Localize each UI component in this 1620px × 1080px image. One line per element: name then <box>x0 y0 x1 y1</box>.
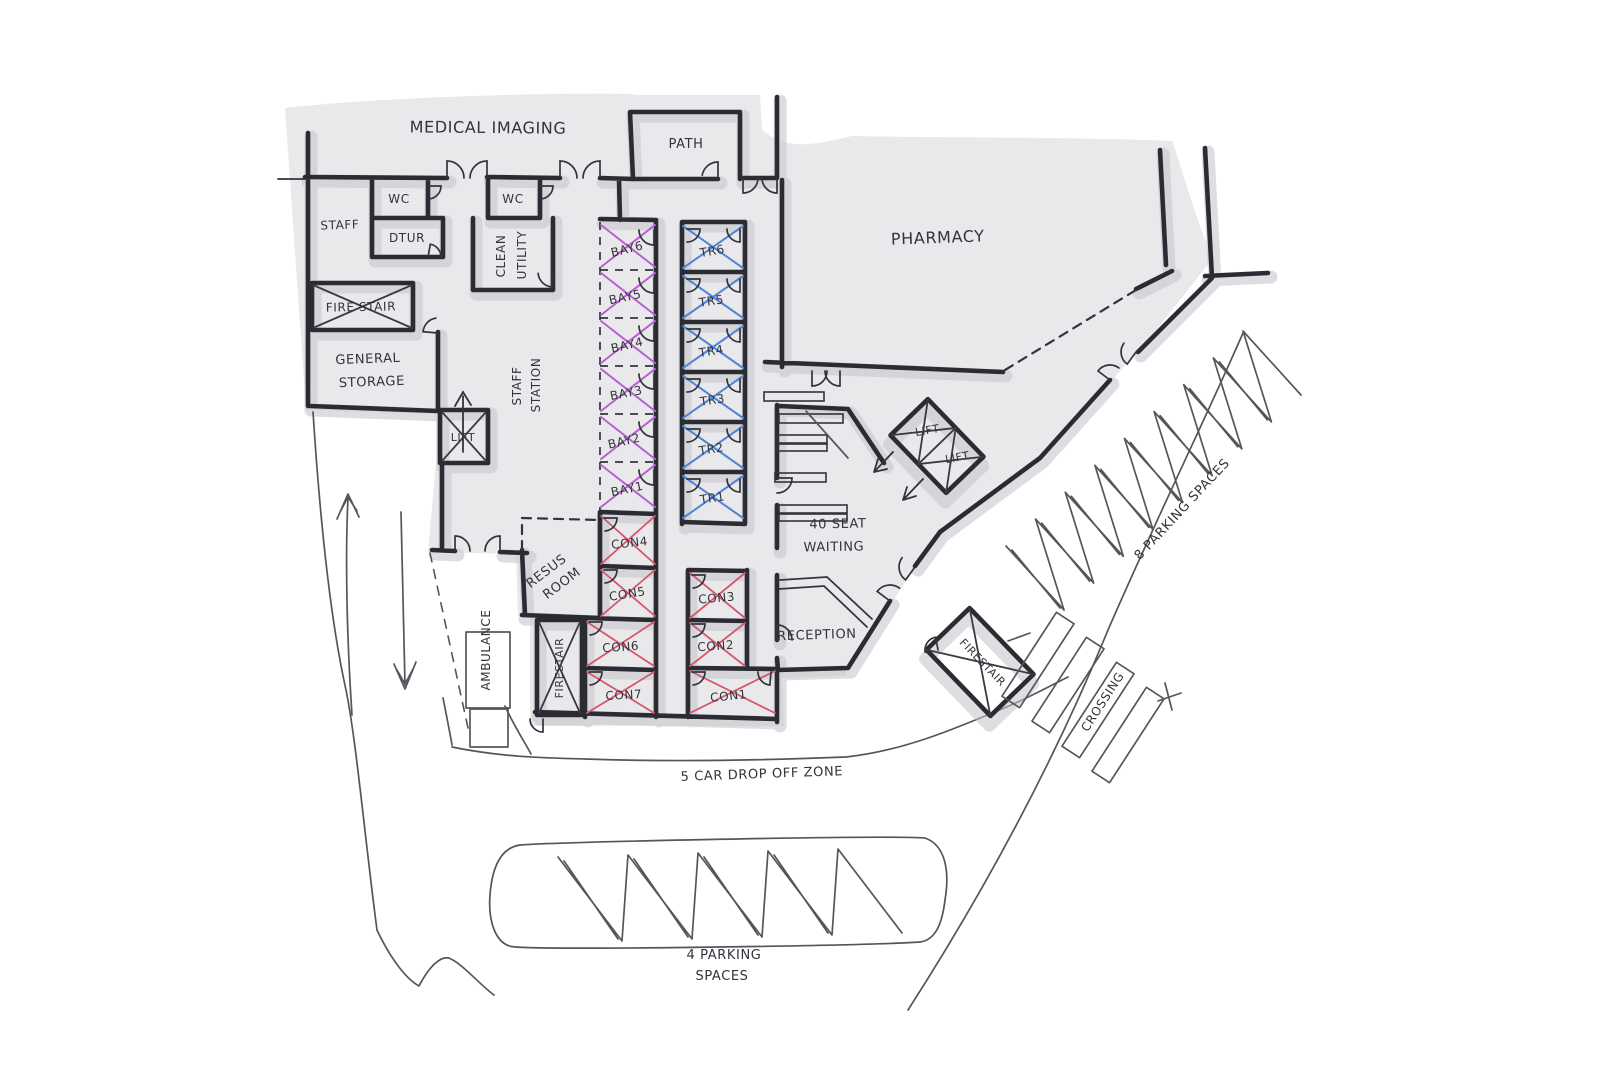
reception-label: RECEPTION <box>777 627 857 645</box>
con2-label: CON2 <box>697 638 735 655</box>
dtur-room-label: DTUR <box>389 231 425 245</box>
clean-utility-label-1: CLEAN <box>494 235 508 278</box>
drop-off-label: 5 CAR DROP OFF ZONE <box>680 764 843 785</box>
wc-left-label: WC <box>388 192 409 206</box>
ambulance-label: AMBULANCE <box>479 609 493 690</box>
fire-stair-top-label: FIRE STAIR <box>326 299 397 314</box>
pharmacy-label: PHARMACY <box>891 226 985 248</box>
firestair-ambulance-label: FIRESTAIR <box>553 638 566 699</box>
parking-bottom-label-2: SPACES <box>695 969 748 984</box>
parking-island <box>490 837 947 948</box>
clean-utility-label-2: UTILITY <box>515 231 529 280</box>
staff-station-label-1: STAFF <box>510 366 524 405</box>
general-storage-label-1: GENERAL <box>335 351 401 368</box>
road-direction-arrows <box>337 494 416 715</box>
plan-canvas: MEDICAL IMAGING PATH WC WC STAFF DTUR CL… <box>0 0 1620 1080</box>
waiting-label-2: WAITING <box>803 539 864 555</box>
pedestrian-crossing <box>1002 612 1164 782</box>
crossing-label: CROSSING <box>1078 669 1127 734</box>
parking-bottom-label-1: 4 PARKING <box>687 948 762 963</box>
floor-plan-sketch: MEDICAL IMAGING PATH WC WC STAFF DTUR CL… <box>0 0 1620 1080</box>
staff-station-label-2: STATION <box>529 358 543 413</box>
con7-label: CON7 <box>605 687 643 703</box>
path-room-label: PATH <box>668 137 703 152</box>
general-storage-label-2: STORAGE <box>339 374 406 391</box>
waiting-label-1: 40 SEAT <box>809 517 866 533</box>
medical-imaging-label: MEDICAL IMAGING <box>410 117 567 137</box>
wc-right-label: WC <box>502 192 523 206</box>
con6-label: CON6 <box>602 639 640 656</box>
lift-room-label: LIFT <box>451 431 476 444</box>
staff-room-label: STAFF <box>320 217 359 232</box>
